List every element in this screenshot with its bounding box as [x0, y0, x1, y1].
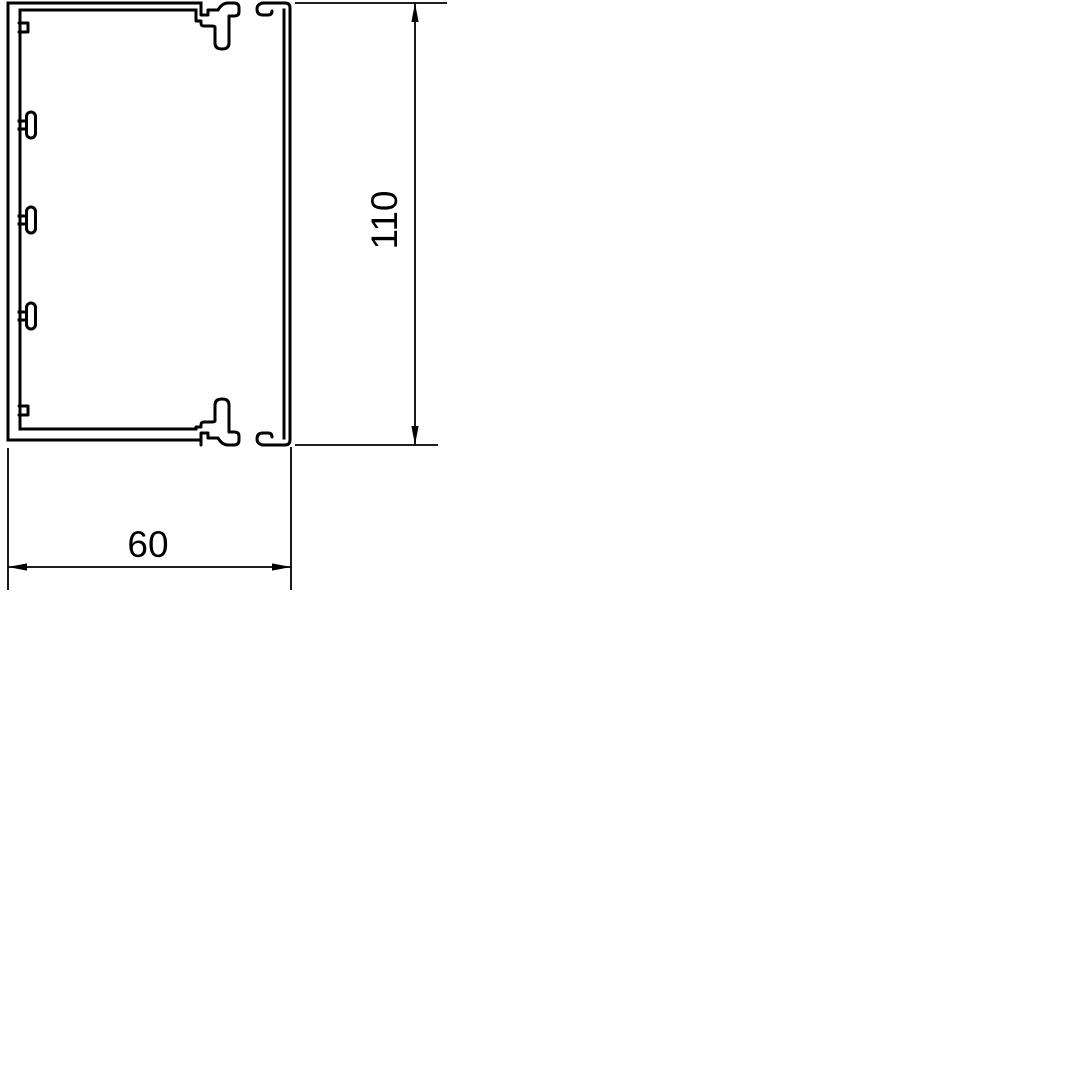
base-bottom-clip — [196, 399, 239, 445]
width-arrow-left — [8, 563, 27, 570]
height-arrow-top — [411, 3, 418, 22]
trunking-cover-profile — [257, 3, 290, 445]
width-dimension-label: 60 — [127, 524, 168, 565]
dimension-height: 110 — [295, 3, 447, 445]
width-arrow-right — [272, 563, 291, 570]
technical-drawing: 60 110 — [0, 0, 1080, 1080]
cover-top-hook — [257, 3, 272, 15]
drawing-canvas: 60 110 — [0, 0, 1080, 1080]
cover-outer-line — [262, 3, 290, 445]
cover-bottom-hook — [257, 433, 272, 445]
height-arrow-bottom — [411, 426, 418, 445]
height-dimension-label: 110 — [364, 191, 405, 250]
base-top-clip — [196, 3, 239, 49]
dimension-width: 60 — [8, 447, 291, 590]
trunking-base-profile — [8, 3, 239, 445]
